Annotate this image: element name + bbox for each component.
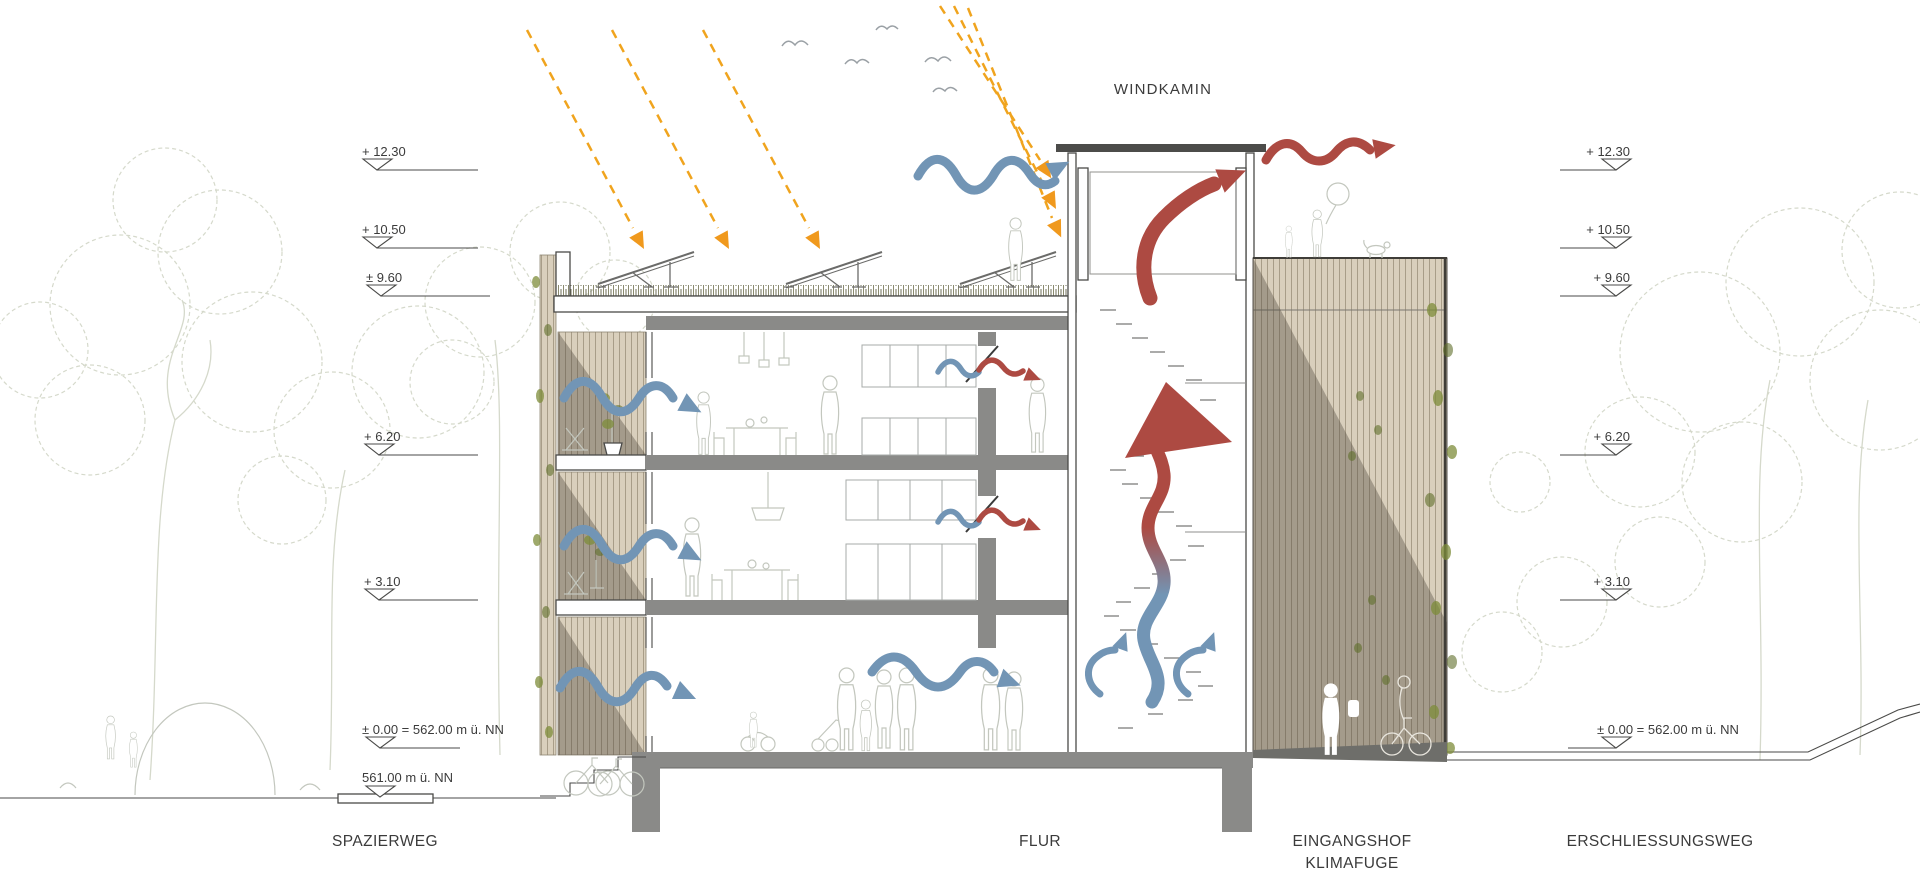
level-label: + 3.10 [1593,574,1630,589]
label-klimafuge: KLIMAFUGE [1305,855,1398,872]
interior-sketch-floor2 [683,472,798,600]
section-canvas: + 12.30 + 10.50 ± 9.60 + 6.20 + 3.10 ± 0… [0,0,1920,883]
transfer-arrow-floor3 [938,360,1044,386]
title-windkamin: WINDKAMIN [1114,81,1212,98]
architectural-section-drawing: + 12.30 + 10.50 ± 9.60 + 6.20 + 3.10 ± 0… [0,0,1920,883]
foundation [632,752,1253,832]
roof-slab [554,296,1076,312]
level-marker: + 10.50 [1560,222,1631,248]
entry-steps [540,757,646,796]
level-marker: + 12.30 [1560,144,1631,170]
level-label: ± 0.00 = 562.00 m ü. NN [1597,722,1739,737]
level-label: + 6.20 [1593,429,1630,444]
ceiling-slab [646,316,1076,330]
stack-air-snake [1144,430,1165,702]
level-label: 561.00 m ü. NN [362,770,453,785]
trees-right [1462,192,1920,760]
level-markers-right: + 12.30 + 10.50 + 9.60 + 6.20 + 3.10 ± 0… [1560,144,1739,748]
warm-air-arrow-exit [1266,142,1370,161]
level-label: + 10.50 [1586,222,1630,237]
level-label: + 12.30 [362,144,406,159]
level-marker: + 3.10 [364,574,478,600]
cool-air-arrow-top [918,159,1055,190]
label-spazierweg: SPAZIERWEG [332,833,438,850]
warm-air-arrowhead-large [1125,382,1232,458]
stairs [1100,310,1246,728]
label-erschliessungsweg: ERSCHLIESSUNGSWEG [1567,833,1754,850]
level-label: + 3.10 [364,574,401,589]
level-markers-left: + 12.30 + 10.50 ± 9.60 + 6.20 + 3.10 ± 0… [362,144,504,797]
level-marker: + 10.50 [362,222,478,248]
level-marker: ± 0.00 = 562.00 m ü. NN [362,722,504,748]
level-label: + 6.20 [364,429,401,444]
level-label: + 12.30 [1586,144,1630,159]
level-marker: + 12.30 [362,144,478,170]
level-marker: + 3.10 [1560,574,1631,600]
chimney-cap [1056,144,1266,152]
birds [782,26,957,92]
cool-air-arrow-ground-right [872,657,994,687]
sun-ray-arrowhead [629,230,650,252]
level-label: + 9.60 [1593,270,1630,285]
floor-slab-310 [646,600,1076,615]
level-label: + 10.50 [362,222,406,237]
interior-sketch-ground [741,668,1023,751]
level-marker: + 9.60 [1560,270,1631,296]
playground-dome-sketch [60,703,320,795]
level-marker: ± 0.00 = 562.00 m ü. NN [1568,722,1739,748]
level-marker: + 6.20 [1560,429,1631,455]
level-label: ± 0.00 = 562.00 m ü. NN [362,722,504,737]
floor-slab-620 [646,455,1076,470]
balcony-doors [646,332,652,755]
dog-sketch [1364,240,1390,258]
green-roof [558,285,1070,296]
level-label: ± 9.60 [366,270,402,285]
warm-air-arrow-chimney [1144,184,1214,298]
label-flur: FLUR [1019,833,1061,850]
corridor-glazing [846,345,976,600]
solar-panels [596,252,1056,288]
trees-left [0,148,484,780]
balloon [1327,183,1349,205]
right-wing-facade [1253,258,1447,755]
cool-air-curl-1 [1088,650,1115,694]
level-marker: 561.00 m ü. NN [362,770,453,797]
transfer-arrow-floor2 [938,510,1044,536]
level-marker: + 6.20 [364,429,478,455]
label-eingangshof: EINGANGSHOF [1293,833,1412,850]
